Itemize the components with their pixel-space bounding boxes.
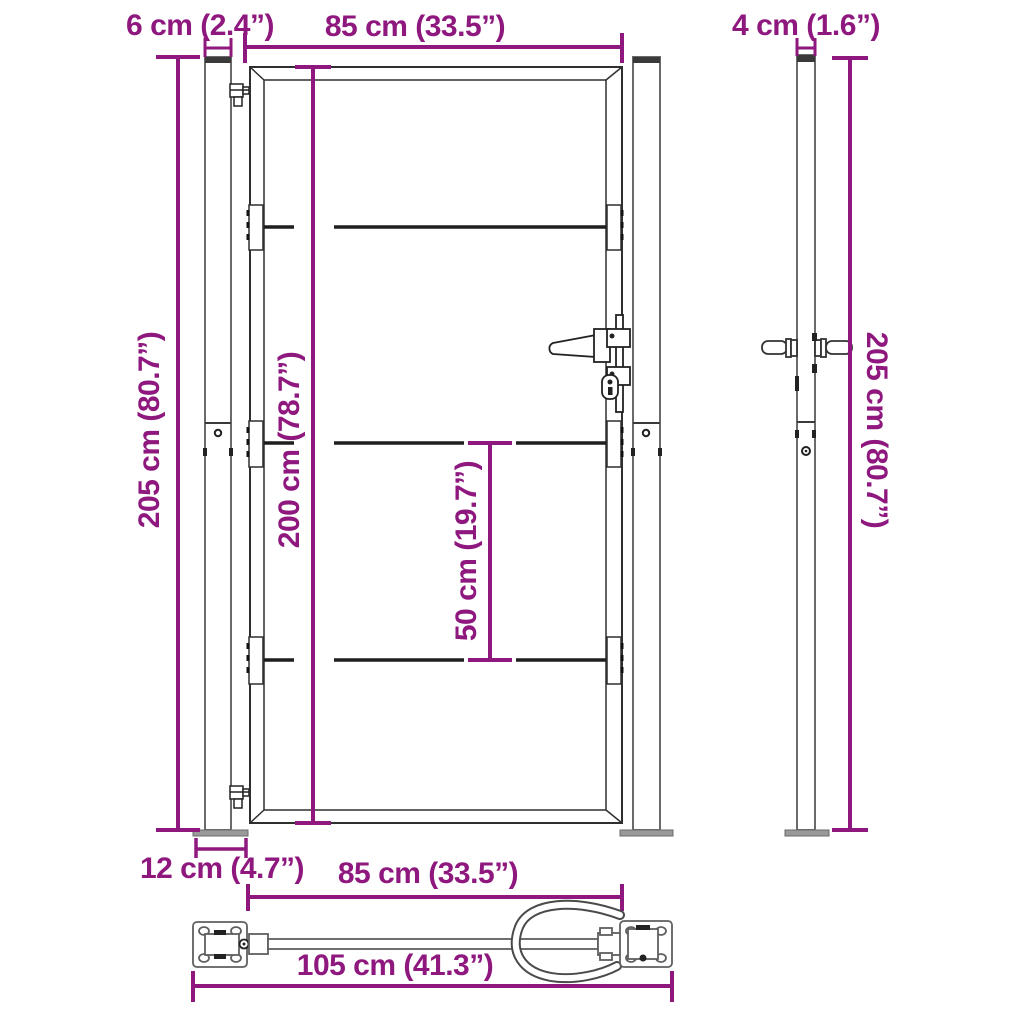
left-post-cap <box>205 57 231 63</box>
left-post-base-plate <box>193 830 248 836</box>
label-base-plate-width: 12 cm (4.7”) <box>140 854 304 884</box>
keyhole <box>608 380 613 385</box>
gate-dimension-diagram: 6 cm (2.4”) 85 cm (33.5”) 4 cm (1.6”) 20… <box>0 0 1024 1024</box>
bottom-left-hinge-block <box>205 934 239 955</box>
left-post-top-bolt <box>230 84 249 106</box>
right-post-base-plate <box>620 830 673 836</box>
right-post-cap <box>633 57 660 63</box>
label-gate-height: 200 cm (78.7”) <box>275 352 305 548</box>
left-post-bottom-bolt <box>230 786 249 808</box>
side-handle-left-lever <box>762 341 787 354</box>
side-post <box>795 55 816 830</box>
label-post-height-right: 205 cm (80.7”) <box>861 332 891 528</box>
bottom-left-mount-plate <box>193 922 249 967</box>
label-gate-width-top: 85 cm (33.5”) <box>325 12 505 42</box>
label-total-height-left: 205 cm (80.7”) <box>135 332 165 528</box>
bottom-right-mount-plate <box>598 921 672 967</box>
hinge-plate <box>249 637 263 684</box>
label-post-width: 6 cm (2.4”) <box>126 11 274 41</box>
hinge-plate <box>607 637 621 684</box>
hinge-plate <box>249 421 263 467</box>
side-post-cap <box>797 55 815 62</box>
side-post-base-plate <box>785 830 829 836</box>
label-total-width: 105 cm (41.3”) <box>297 951 493 981</box>
hinge-plate <box>249 205 263 250</box>
label-panel-spacing: 50 cm (19.7”) <box>452 461 482 641</box>
latch-clamp-top <box>607 329 630 347</box>
label-post-depth: 4 cm (1.6”) <box>732 11 880 41</box>
front-view <box>156 33 673 836</box>
right-post <box>631 57 662 830</box>
left-post <box>203 57 233 830</box>
hinge-plate <box>607 205 621 250</box>
label-gate-width-bottom: 85 cm (33.5”) <box>338 859 518 889</box>
hinge-plate <box>607 421 621 467</box>
side-view <box>762 38 868 836</box>
